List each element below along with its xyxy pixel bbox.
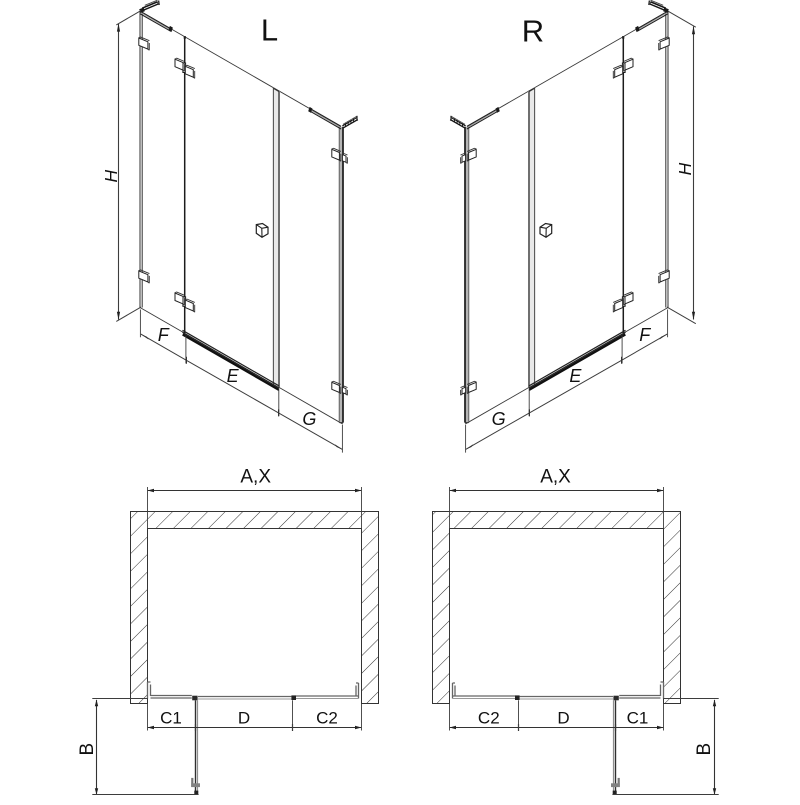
svg-text:C2: C2: [478, 709, 500, 728]
svg-text:B: B: [694, 743, 715, 756]
svg-text:E: E: [569, 366, 582, 386]
svg-text:H: H: [101, 170, 121, 183]
svg-text:F: F: [639, 325, 651, 345]
svg-text:D: D: [557, 709, 569, 728]
svg-text:D: D: [238, 709, 250, 728]
svg-text:C1: C1: [627, 709, 649, 728]
svg-text:G: G: [302, 409, 316, 429]
svg-text:B: B: [77, 743, 98, 756]
svg-text:F: F: [158, 325, 170, 345]
svg-text:H: H: [675, 162, 695, 175]
svg-text:R: R: [522, 14, 544, 49]
svg-text:C1: C1: [160, 709, 182, 728]
svg-text:E: E: [227, 366, 240, 386]
svg-text:C2: C2: [316, 709, 338, 728]
svg-text:G: G: [492, 409, 506, 429]
svg-text:A,X: A,X: [240, 467, 271, 488]
svg-text:L: L: [261, 13, 278, 48]
svg-text:A,X: A,X: [540, 467, 571, 488]
